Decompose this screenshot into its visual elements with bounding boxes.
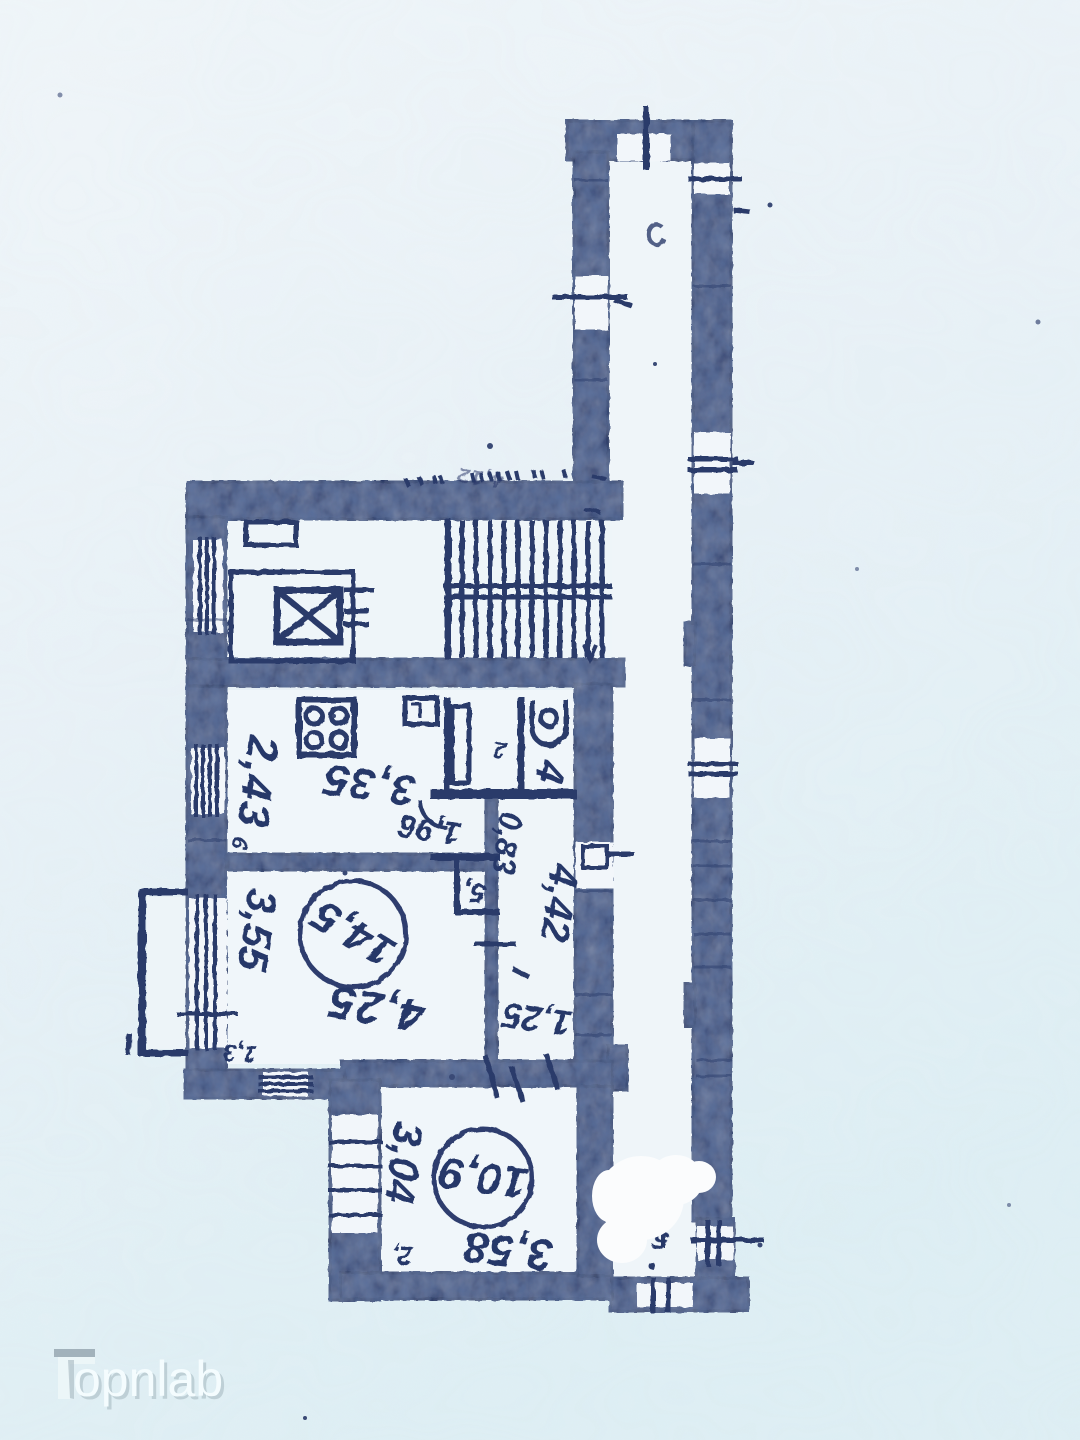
svg-text:opnlab: opnlab xyxy=(73,1351,223,1407)
svg-text:3,04: 3,04 xyxy=(376,1120,433,1207)
svg-text:3,58: 3,58 xyxy=(461,1221,555,1279)
svg-text:2,: 2, xyxy=(390,1240,415,1272)
svg-text:1,3: 1,3 xyxy=(222,1038,258,1068)
